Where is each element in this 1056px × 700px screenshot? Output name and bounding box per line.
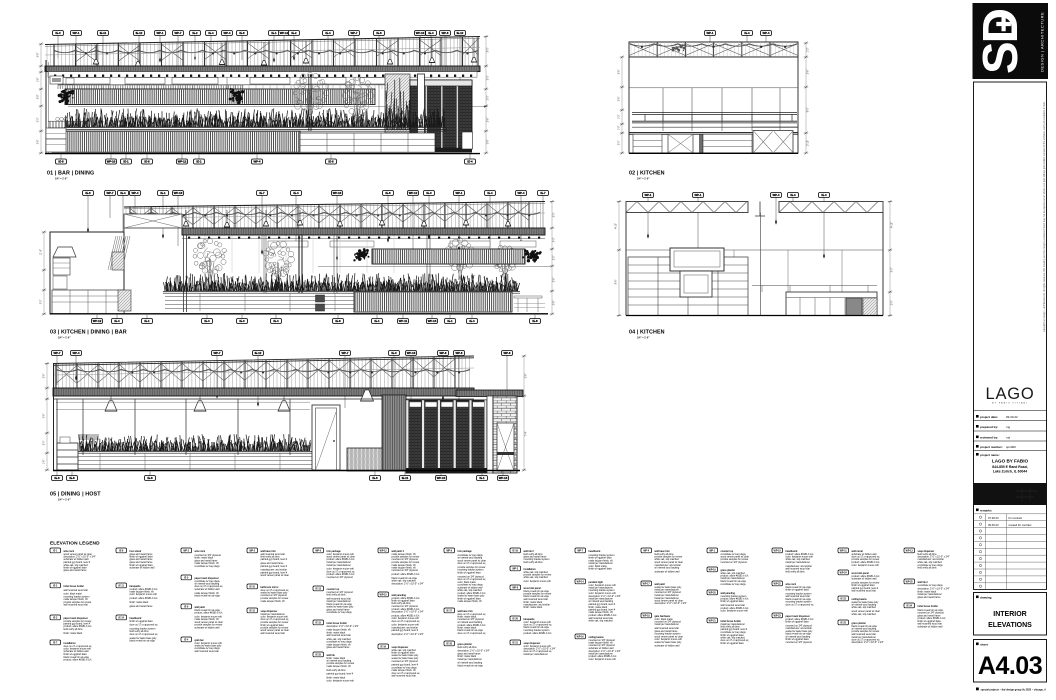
svg-text:mounted on 3/4″ plywood: mounted on 3/4″ plywood: [458, 618, 485, 621]
svg-text:install per manufacturer: install per manufacturer: [261, 613, 286, 616]
svg-text:color: benjamin moore wht: color: benjamin moore wht: [524, 580, 552, 583]
svg-text:8′-0″: 8′-0″: [808, 108, 810, 113]
svg-text:painted gyp board, level 4: painted gyp board, level 4: [589, 603, 616, 606]
svg-text:install per manufacturer: install per manufacturer: [721, 577, 746, 580]
svg-text:1/4″ = 1′-0″: 1/4″ = 1′-0″: [55, 178, 68, 181]
svg-text:product: allure #8181-b & k: product: allure #8181-b & k: [458, 592, 487, 595]
svg-text:glass and metal frame: glass and metal frame: [524, 556, 548, 559]
svg-text:soap dispenser: soap dispenser: [261, 611, 278, 613]
svg-text:provide samples for review: provide samples for review: [852, 581, 880, 584]
svg-text:wall mounted wood slat: wall mounted wood slat: [786, 595, 811, 598]
svg-text:installation: installation: [64, 642, 77, 645]
svg-text:wood veneer panel w/ clear: wood veneer panel w/ clear: [261, 629, 290, 632]
svg-text:WP-7: WP-7: [351, 31, 358, 35]
svg-text:IE-4: IE-4: [208, 31, 214, 35]
svg-text:wall mounted wood slat: wall mounted wood slat: [524, 598, 549, 601]
svg-text:soap dispenser: soap dispenser: [524, 643, 541, 645]
svg-text:wine rack: wine rack: [64, 551, 75, 553]
svg-text:sp1000: sp1000: [1006, 445, 1016, 449]
svg-text:coordinate w/ mep dwgs: coordinate w/ mep dwgs: [327, 611, 353, 614]
svg-text:description: 2′-0″ x 10′-0″ x: description: 2′-0″ x 10′-0″ x 3/4″: [458, 650, 490, 653]
svg-text:manufacturer: and similar: manufacturer: and similar: [392, 627, 418, 630]
svg-text:finish: matte black: finish: matte black: [130, 601, 149, 604]
svg-text:WP-14: WP-14: [577, 581, 585, 584]
svg-text:WP-1: WP-1: [707, 31, 714, 35]
svg-text:black reveal trim at edge: black reveal trim at edge: [852, 625, 878, 628]
svg-text:coordinate w/ mep dwgs: coordinate w/ mep dwgs: [918, 564, 944, 567]
svg-text:wall tile: wall tile: [327, 654, 336, 657]
svg-text:mounted on 3/4″ plywood: mounted on 3/4″ plywood: [589, 639, 616, 642]
svg-text:glass and metal frame: glass and metal frame: [130, 605, 154, 608]
svg-text:mounted on 3/4″ plywood: mounted on 3/4″ plywood: [786, 624, 813, 627]
svg-text:w/ mineral wool backing: w/ mineral wool backing: [458, 621, 483, 624]
svg-text:mounting bracket system: mounting bracket system: [786, 592, 812, 595]
svg-text:toilet tissue holder: toilet tissue holder: [721, 620, 742, 623]
svg-text:glass and metal frame: glass and metal frame: [64, 569, 88, 572]
svg-text:wall mounted wood slat: wall mounted wood slat: [721, 604, 746, 607]
svg-text:WP-25: WP-25: [906, 582, 914, 584]
svg-text:wall mounted wood slat: wall mounted wood slat: [261, 553, 286, 556]
svg-text:matte lacquer finish, rift: matte lacquer finish, rift: [195, 618, 219, 621]
svg-text:field verify all dims: field verify all dims: [524, 553, 544, 556]
svg-text:field verify all dims: field verify all dims: [64, 628, 84, 631]
svg-text:wall tile 2: wall tile 2: [524, 550, 535, 553]
svg-text:product: allure #8181-b & k: product: allure #8181-b & k: [327, 558, 356, 561]
svg-text:w/ mineral wool backing: w/ mineral wool backing: [852, 628, 877, 631]
svg-text:wall mounted wood slat: wall mounted wood slat: [918, 623, 943, 626]
svg-text:IE-2: IE-2: [192, 31, 198, 35]
svg-text:finish w/ eggshell latex: finish w/ eggshell latex: [721, 600, 745, 603]
svg-text:1/4″ = 1′-0″: 1/4″ = 1′-0″: [58, 337, 71, 340]
svg-text:dove oc-17 or approved eq: dove oc-17 or approved eq: [130, 624, 159, 627]
svg-text:finish w/ eggshell latex: finish w/ eggshell latex: [458, 597, 482, 600]
svg-text:7′-4″: 7′-4″: [526, 432, 528, 437]
svg-text:description: 2′-0″ x 10′-0″ x: description: 2′-0″ x 10′-0″ x 3/4″: [392, 583, 424, 586]
svg-text:painted gyp board, level 4: painted gyp board, level 4: [327, 673, 354, 676]
svg-text:IE-15: IE-15: [315, 623, 321, 625]
svg-text:sealed w/ water base poly: sealed w/ water base poly: [261, 592, 289, 595]
svg-text:white oak, slip matched: white oak, slip matched: [392, 580, 417, 583]
svg-text:IE-21: IE-21: [512, 643, 518, 645]
svg-text:provide samples for review: provide samples for review: [64, 601, 92, 604]
svg-text:wall base trim: wall base trim: [458, 610, 473, 613]
svg-text:IE-17: IE-17: [446, 611, 452, 613]
svg-text:coordinate w/ mep dwgs: coordinate w/ mep dwgs: [195, 580, 221, 583]
svg-text:WP-9: WP-9: [446, 551, 452, 553]
svg-text:wine rack: wine rack: [786, 584, 797, 586]
svg-text:paper towel dispenser: paper towel dispenser: [64, 617, 88, 620]
svg-text:black reveal trim at edge: black reveal trim at edge: [786, 586, 812, 589]
svg-text:description: 2′-0″ x 10′-0″ x: description: 2′-0″ x 10′-0″ x 3/4″: [655, 602, 687, 605]
svg-text:painted gyp board, level 4: painted gyp board, level 4: [721, 628, 748, 631]
svg-text:install per manufacturer: install per manufacturer: [655, 597, 680, 600]
svg-text:manufacturer: and similar: manufacturer: and similar: [918, 558, 944, 561]
svg-text:color: black matte: color: black matte: [458, 581, 477, 584]
svg-text:wall mounted wood slat: wall mounted wood slat: [64, 589, 89, 592]
svg-text:description: 2′-0″ x 10′-0″ x: description: 2′-0″ x 10′-0″ x 3/4″: [64, 556, 96, 559]
svg-text:WP-10: WP-10: [107, 160, 116, 164]
svg-text:coordinate w/ mep dwgs: coordinate w/ mep dwgs: [721, 553, 747, 556]
svg-text:wall mounted wood slat: wall mounted wood slat: [327, 634, 352, 637]
svg-text:color: benjamin moore wht: color: benjamin moore wht: [327, 679, 355, 682]
svg-text:IE-3: IE-3: [426, 191, 432, 195]
svg-text:2′-6″: 2′-6″: [808, 70, 810, 75]
svg-text:matte lacquer finish, rift: matte lacquer finish, rift: [195, 592, 219, 595]
svg-text:mounted on 3/4″ plywood: mounted on 3/4″ plywood: [392, 558, 419, 561]
svg-text:mounted on 3/4″ plywood: mounted on 3/4″ plywood: [261, 594, 288, 597]
svg-text:sealed w/ water base poly: sealed w/ water base poly: [786, 630, 814, 633]
svg-text:pendant light: pendant light: [589, 581, 604, 584]
svg-text:w/ mineral wool backing: w/ mineral wool backing: [589, 600, 614, 603]
svg-text:IE-1: IE-1: [271, 31, 277, 35]
svg-text:color: benjamin moore wht: color: benjamin moore wht: [524, 621, 552, 624]
svg-text:WP-13: WP-13: [407, 351, 416, 355]
svg-text:coordinate w/ mep dwgs: coordinate w/ mep dwgs: [918, 584, 944, 587]
svg-text:sealed w/ water base poly: sealed w/ water base poly: [852, 601, 880, 604]
svg-text:grass planter: grass planter: [458, 643, 473, 646]
svg-text:color: benjamin moore wht: color: benjamin moore wht: [524, 645, 552, 648]
svg-text:WP-23: WP-23: [774, 616, 782, 618]
svg-text:WP-12: WP-12: [178, 160, 187, 164]
svg-text:sealed w/ water base poly: sealed w/ water base poly: [195, 645, 223, 648]
svg-text:glass and metal frame: glass and metal frame: [195, 559, 219, 562]
svg-text:black reveal trim at edge: black reveal trim at edge: [918, 609, 944, 612]
svg-text:8′-6″: 8′-6″: [615, 280, 617, 285]
svg-text:dove oc-17 or approved eq: dove oc-17 or approved eq: [261, 589, 290, 592]
svg-text:finish: matte black: finish: matte black: [458, 616, 477, 619]
svg-text:mounting bracket system: mounting bracket system: [589, 554, 615, 557]
svg-text:IE-4: IE-4: [487, 191, 493, 195]
svg-text:wall mounted wood slat: wall mounted wood slat: [195, 650, 220, 653]
svg-text:field verify all dims: field verify all dims: [327, 594, 347, 597]
svg-text:IE-2: IE-2: [291, 31, 297, 35]
svg-text:installation: installation: [524, 568, 537, 571]
svg-text:wall paneling: wall paneling: [392, 595, 407, 597]
svg-text:WP-6: WP-6: [315, 551, 321, 553]
svg-text:provide samples for review: provide samples for review: [261, 627, 289, 630]
svg-text:wood veneer panel w/ clear: wood veneer panel w/ clear: [852, 610, 881, 613]
svg-text:product: allure #8181-b & k: product: allure #8181-b & k: [786, 553, 815, 556]
svg-text:black reveal trim at edge: black reveal trim at edge: [458, 629, 484, 632]
svg-text:ceiling beams: ceiling beams: [852, 599, 868, 601]
svg-text:headboard: headboard: [786, 551, 798, 553]
svg-text:provide samples for review: provide samples for review: [655, 556, 683, 559]
svg-text:matte lacquer finish, rift: matte lacquer finish, rift: [392, 564, 416, 567]
svg-text:WP-7: WP-7: [342, 351, 349, 355]
svg-text:WP-8: WP-8: [512, 588, 518, 590]
svg-text:IE-6: IE-6: [372, 476, 378, 480]
svg-text:substrate w/ hidden wall: substrate w/ hidden wall: [852, 553, 877, 556]
svg-text:3′-0″: 3′-0″: [618, 141, 620, 146]
svg-text:WP-3: WP-3: [512, 569, 518, 571]
svg-text:WP-24: WP-24: [840, 572, 848, 575]
svg-text:install per manufacturer: install per manufacturer: [655, 589, 680, 592]
svg-text:gate hardware: gate hardware: [655, 615, 671, 618]
svg-text:IE-5: IE-5: [184, 578, 189, 580]
svg-text:IE-8: IE-8: [58, 160, 64, 164]
svg-text:1/4″ = 1′-0″: 1/4″ = 1′-0″: [637, 178, 650, 181]
svg-text:wood veneer panel w/ clear: wood veneer panel w/ clear: [458, 559, 487, 562]
svg-text:black reveal trim at edge: black reveal trim at edge: [327, 603, 353, 606]
svg-text:IE-12: IE-12: [457, 31, 464, 35]
svg-text:844-850 E Rand Road,: 844-850 E Rand Road,: [992, 465, 1027, 469]
svg-text:description: 2′-0″ x 10′-0″ x: description: 2′-0″ x 10′-0″ x 3/4″: [524, 648, 556, 651]
svg-text:1′-2″: 1′-2″: [808, 48, 810, 53]
svg-text:WP-1: WP-1: [73, 31, 80, 35]
svg-text:WP-12: WP-12: [93, 319, 102, 323]
svg-text:WP-11: WP-11: [840, 551, 848, 553]
svg-text:banquette: banquette: [130, 585, 142, 588]
svg-text:product: allure #8181-b & k: product: allure #8181-b & k: [589, 655, 618, 658]
svg-text:white oak, slip matched: white oak, slip matched: [64, 564, 89, 567]
svg-text:project number:: project number:: [980, 445, 1003, 449]
svg-text:toilet tissue holder: toilet tissue holder: [918, 605, 939, 608]
svg-text:wall base trim: wall base trim: [261, 550, 276, 553]
svg-text:product: allure #8181-b & k: product: allure #8181-b & k: [327, 573, 356, 576]
svg-text:IE-3: IE-3: [391, 351, 397, 355]
svg-text:field verify all dims: field verify all dims: [918, 553, 938, 556]
svg-text:finish w/ eggshell latex: finish w/ eggshell latex: [130, 556, 154, 559]
svg-text:substrate w/ hidden wall: substrate w/ hidden wall: [195, 588, 220, 591]
svg-text:glass and metal frame: glass and metal frame: [130, 561, 154, 564]
svg-text:1/4″ = 1′-0″: 1/4″ = 1′-0″: [637, 337, 650, 340]
svg-text:dove oc-17 or approved eq: dove oc-17 or approved eq: [524, 624, 553, 627]
svg-text:IE-4: IE-4: [821, 193, 827, 197]
svg-text:IE-2: IE-2: [53, 586, 58, 588]
svg-text:glass and metal frame: glass and metal frame: [130, 558, 154, 561]
svg-text:wall base trim: wall base trim: [655, 550, 670, 553]
svg-text:project date:: project date:: [980, 415, 998, 419]
svg-text:product: allure #8181-b & k: product: allure #8181-b & k: [195, 612, 224, 615]
svg-text:2′-10″: 2′-10″: [808, 140, 810, 146]
svg-text:dove oc-17 or approved eq: dove oc-17 or approved eq: [524, 650, 553, 653]
svg-text:glass and metal frame: glass and metal frame: [918, 614, 942, 617]
svg-text:WP-7: WP-7: [54, 351, 61, 355]
svg-text:provide samples for review: provide samples for review: [327, 662, 355, 665]
svg-text:BY FABIO VIVIANI: BY FABIO VIVIANI: [992, 402, 1028, 405]
svg-text:provide samples for review: provide samples for review: [721, 558, 749, 561]
svg-text:wall mural: wall mural: [852, 551, 864, 553]
svg-text:finish w/ eggshell latex: finish w/ eggshell latex: [392, 600, 416, 603]
svg-text:coordinate w/ mep dwgs: coordinate w/ mep dwgs: [458, 584, 484, 587]
svg-text:finish w/ eggshell latex: finish w/ eggshell latex: [589, 557, 613, 560]
svg-text:dove oc-17 or approved eq: dove oc-17 or approved eq: [458, 562, 487, 565]
svg-text:IE-1: IE-1: [374, 319, 380, 323]
svg-text:dove oc-17 or approved eq: dove oc-17 or approved eq: [458, 613, 487, 616]
svg-text:field verify all dims: field verify all dims: [130, 630, 150, 633]
svg-text:IE-1: IE-1: [123, 160, 129, 164]
svg-text:substrate w/ hidden wall: substrate w/ hidden wall: [589, 647, 614, 650]
svg-text:finish: matte black: finish: matte black: [918, 590, 937, 593]
svg-text:finish w/ eggshell latex: finish w/ eggshell latex: [589, 568, 613, 571]
svg-text:finish: matte black: finish: matte black: [64, 632, 83, 635]
svg-text:finish: matte black: finish: matte black: [458, 655, 477, 658]
svg-text:description: 2′-0″ x 10′-0″ x: description: 2′-0″ x 10′-0″ x 3/4″: [327, 625, 359, 628]
svg-text:grab bar: grab bar: [195, 640, 204, 642]
svg-text:dove oc-17 or approved eq: dove oc-17 or approved eq: [392, 672, 421, 675]
svg-text:WP-18: WP-18: [643, 616, 651, 618]
svg-text:3′-6″: 3′-6″: [37, 140, 39, 145]
svg-text:matte lacquer finish, rift: matte lacquer finish, rift: [392, 567, 416, 570]
svg-text:white oak, slip matched: white oak, slip matched: [392, 649, 417, 652]
svg-text:2′-6″: 2′-6″: [618, 70, 620, 75]
svg-text:sealed w/ water base poly: sealed w/ water base poly: [392, 654, 420, 657]
svg-text:install per manufacturer: install per manufacturer: [918, 593, 943, 596]
svg-text:wall mounted wood slat: wall mounted wood slat: [786, 568, 811, 571]
svg-text:wood veneer panel w/ clear: wood veneer panel w/ clear: [195, 621, 224, 624]
svg-text:01 | BAR | DINING: 01 | BAR | DINING: [47, 171, 94, 177]
svg-text:painted gyp board, level 4: painted gyp board, level 4: [261, 565, 288, 568]
svg-text:1′-0″: 1′-0″: [618, 126, 620, 131]
svg-text:reviewed by:: reviewed by:: [980, 436, 998, 440]
svg-text:WP-12: WP-12: [409, 191, 418, 195]
svg-text:install per manufacturer: install per manufacturer: [721, 623, 746, 626]
svg-text:WP-16: WP-16: [577, 637, 585, 639]
svg-text:color: benjamin moore wht: color: benjamin moore wht: [786, 556, 814, 559]
svg-text:finish w/ eggshell latex: finish w/ eggshell latex: [721, 634, 745, 637]
svg-text:bathroom mirror: bathroom mirror: [261, 586, 279, 589]
svg-text:dove oc-17 or approved eq: dove oc-17 or approved eq: [195, 585, 224, 588]
svg-text:field verify all dims: field verify all dims: [392, 602, 412, 605]
svg-text:IE-8: IE-8: [532, 319, 538, 323]
svg-text:IE-12: IE-12: [136, 31, 143, 35]
svg-text:WP-2: WP-2: [183, 551, 189, 553]
svg-text:IE-4: IE-4: [469, 319, 475, 323]
svg-text:dove oc-17 or approved eq: dove oc-17 or approved eq: [327, 570, 356, 573]
svg-text:WP-4: WP-4: [224, 31, 231, 35]
svg-text:provide samples for review: provide samples for review: [64, 620, 92, 623]
svg-text:wall mounted wood slat: wall mounted wood slat: [327, 597, 352, 600]
svg-text:wood veneer panel w/ clear: wood veneer panel w/ clear: [327, 556, 356, 559]
svg-text:painted gyp board, level 4: painted gyp board, level 4: [64, 623, 91, 626]
svg-text:product: allure #8181-b & k: product: allure #8181-b & k: [458, 624, 487, 627]
svg-text:color: black matte: color: black matte: [64, 593, 83, 596]
svg-text:IE-4: IE-4: [744, 31, 750, 35]
svg-text:IE-7: IE-7: [53, 643, 58, 645]
svg-text:mounted on 3/4″ plywood: mounted on 3/4″ plywood: [392, 569, 419, 572]
svg-text:IE-3: IE-3: [53, 618, 58, 620]
svg-text:WP-6: WP-6: [440, 351, 447, 355]
svg-text:04 | KITCHEN: 04 | KITCHEN: [629, 330, 665, 336]
svg-text:WP-20: WP-20: [709, 593, 717, 595]
svg-text:white oak, slip matched: white oak, slip matched: [852, 613, 877, 616]
svg-text:finish w/ eggshell latex: finish w/ eggshell latex: [786, 621, 810, 624]
svg-text:copyright sd design + architec: copyright sd design + architecture ltd. …: [1043, 101, 1046, 332]
svg-text:WP-10: WP-10: [774, 551, 782, 553]
svg-text:white oak, slip matched: white oak, slip matched: [721, 572, 746, 575]
svg-text:3′-6″: 3′-6″: [554, 301, 556, 306]
svg-text:provide samples for review: provide samples for review: [195, 624, 223, 627]
svg-text:wall paint 2: wall paint 2: [392, 550, 405, 553]
svg-text:w/ mineral wool backing: w/ mineral wool backing: [327, 660, 352, 663]
svg-text:IE-1: IE-1: [144, 319, 150, 323]
svg-text:03 | KITCHEN | DINING | BAR: 03 | KITCHEN | DINING | BAR: [50, 330, 127, 336]
svg-text:install per manufacturer: install per manufacturer: [327, 561, 352, 564]
svg-text:IE-16: IE-16: [380, 647, 386, 649]
svg-text:mounted on 3/4″ plywood: mounted on 3/4″ plywood: [458, 575, 485, 578]
svg-text:finish w/ eggshell latex: finish w/ eggshell latex: [130, 620, 154, 623]
svg-text:IE-8: IE-8: [385, 191, 391, 195]
svg-text:8′-0″: 8′-0″: [488, 48, 490, 53]
svg-text:WP-4: WP-4: [73, 351, 80, 355]
svg-text:mounted on 3/4″ plywood: mounted on 3/4″ plywood: [327, 576, 354, 579]
svg-text:black reveal trim at edge: black reveal trim at edge: [458, 665, 484, 668]
svg-text:2′-6″: 2′-6″: [43, 374, 45, 379]
svg-text:IE-6: IE-6: [54, 476, 60, 480]
svg-text:install per manufacturer: install per manufacturer: [655, 623, 680, 626]
svg-text:painted gyp board, level 4: painted gyp board, level 4: [392, 664, 419, 667]
svg-text:finish: matte black: finish: matte black: [524, 601, 543, 604]
svg-text:matte lacquer finish, rift: matte lacquer finish, rift: [589, 642, 613, 645]
svg-text:IE-1: IE-1: [479, 476, 485, 480]
svg-text:IE-19: IE-19: [512, 551, 518, 553]
svg-text:coordinate w/ mep dwgs: coordinate w/ mep dwgs: [195, 565, 221, 568]
svg-text:glass and metal frame: glass and metal frame: [327, 608, 351, 611]
svg-text:provide samples for review: provide samples for review: [392, 561, 420, 564]
svg-text:2′-6″: 2′-6″: [554, 278, 556, 283]
svg-text:substrate w/ hidden wall: substrate w/ hidden wall: [852, 578, 877, 581]
svg-text:IE-4: IE-4: [120, 191, 126, 195]
svg-text:IE-11: IE-11: [402, 476, 409, 480]
svg-text:wood slat panel: wood slat panel: [852, 572, 870, 575]
svg-text:mg: mg: [1006, 425, 1010, 429]
svg-text:matte lacquer finish, rift: matte lacquer finish, rift: [589, 611, 613, 614]
svg-text:paper towel dispenser: paper towel dispenser: [195, 577, 219, 580]
svg-text:1′-6″: 1′-6″: [43, 460, 45, 465]
svg-text:black reveal trim at edge: black reveal trim at edge: [64, 656, 90, 659]
svg-text:2′-0″: 2′-0″: [554, 256, 556, 261]
svg-text:product: allure #8181-b & k: product: allure #8181-b & k: [721, 575, 750, 578]
svg-text:manufacturer: and similar: manufacturer: and similar: [786, 627, 812, 630]
svg-text:wall paint: wall paint: [195, 606, 206, 609]
svg-text:IE-11: IE-11: [119, 586, 125, 588]
svg-text:IE-4: IE-4: [467, 160, 473, 164]
svg-text:black reveal trim at edge: black reveal trim at edge: [392, 577, 418, 580]
svg-text:mounting bracket system: mounting bracket system: [786, 601, 812, 604]
svg-text:WP-13: WP-13: [499, 476, 508, 480]
svg-text:WP-7: WP-7: [577, 551, 583, 553]
svg-text:color: black matte: color: black matte: [655, 618, 674, 621]
svg-text:mounted on 3/4″ plywood: mounted on 3/4″ plywood: [786, 641, 813, 644]
svg-text:dove oc-17 or approved eq: dove oc-17 or approved eq: [721, 639, 750, 642]
svg-text:product: allure #8181-b & k: product: allure #8181-b & k: [786, 618, 815, 621]
svg-text:IE-13: IE-13: [315, 589, 321, 591]
svg-text:wood veneer panel w/ clear: wood veneer panel w/ clear: [721, 556, 750, 559]
svg-text:install per manufacturer: install per manufacturer: [458, 658, 483, 661]
svg-text:IE-24: IE-24: [906, 605, 912, 608]
svg-text:provide samples for review: provide samples for review: [458, 566, 486, 569]
svg-text:mounted on 3/4″ plywood: mounted on 3/4″ plywood: [327, 591, 354, 594]
svg-text:mounting bracket system: mounting bracket system: [721, 595, 747, 598]
svg-text:description: 2′-0″ x 10′-0″ x: description: 2′-0″ x 10′-0″ x 3/4″: [392, 633, 424, 636]
svg-text:IE-22: IE-22: [840, 599, 846, 601]
svg-text:wall mounted wood slat: wall mounted wood slat: [261, 632, 286, 635]
svg-text:coordinate w/ mep dwgs: coordinate w/ mep dwgs: [195, 647, 221, 650]
svg-text:WP-7: WP-7: [175, 31, 182, 35]
svg-text:IE-14: IE-14: [118, 617, 124, 620]
svg-text:black reveal trim at edge: black reveal trim at edge: [786, 598, 812, 601]
svg-text:sealed w/ water base poly: sealed w/ water base poly: [392, 657, 420, 660]
svg-text:white oak, slip matched: white oak, slip matched: [458, 589, 483, 592]
svg-text:provide samples for review: provide samples for review: [852, 558, 880, 561]
svg-text:color: benjamin moore wht: color: benjamin moore wht: [392, 617, 420, 620]
svg-text:matte lacquer finish, rift: matte lacquer finish, rift: [458, 600, 482, 603]
svg-text:dove oc-17 or approved eq: dove oc-17 or approved eq: [786, 603, 815, 606]
svg-text:IE-6: IE-6: [376, 31, 382, 35]
svg-text:matte lacquer finish, rift: matte lacquer finish, rift: [392, 553, 416, 556]
svg-text:07.28.23: 07.28.23: [988, 516, 999, 520]
svg-text:trim package: trim package: [327, 550, 342, 553]
